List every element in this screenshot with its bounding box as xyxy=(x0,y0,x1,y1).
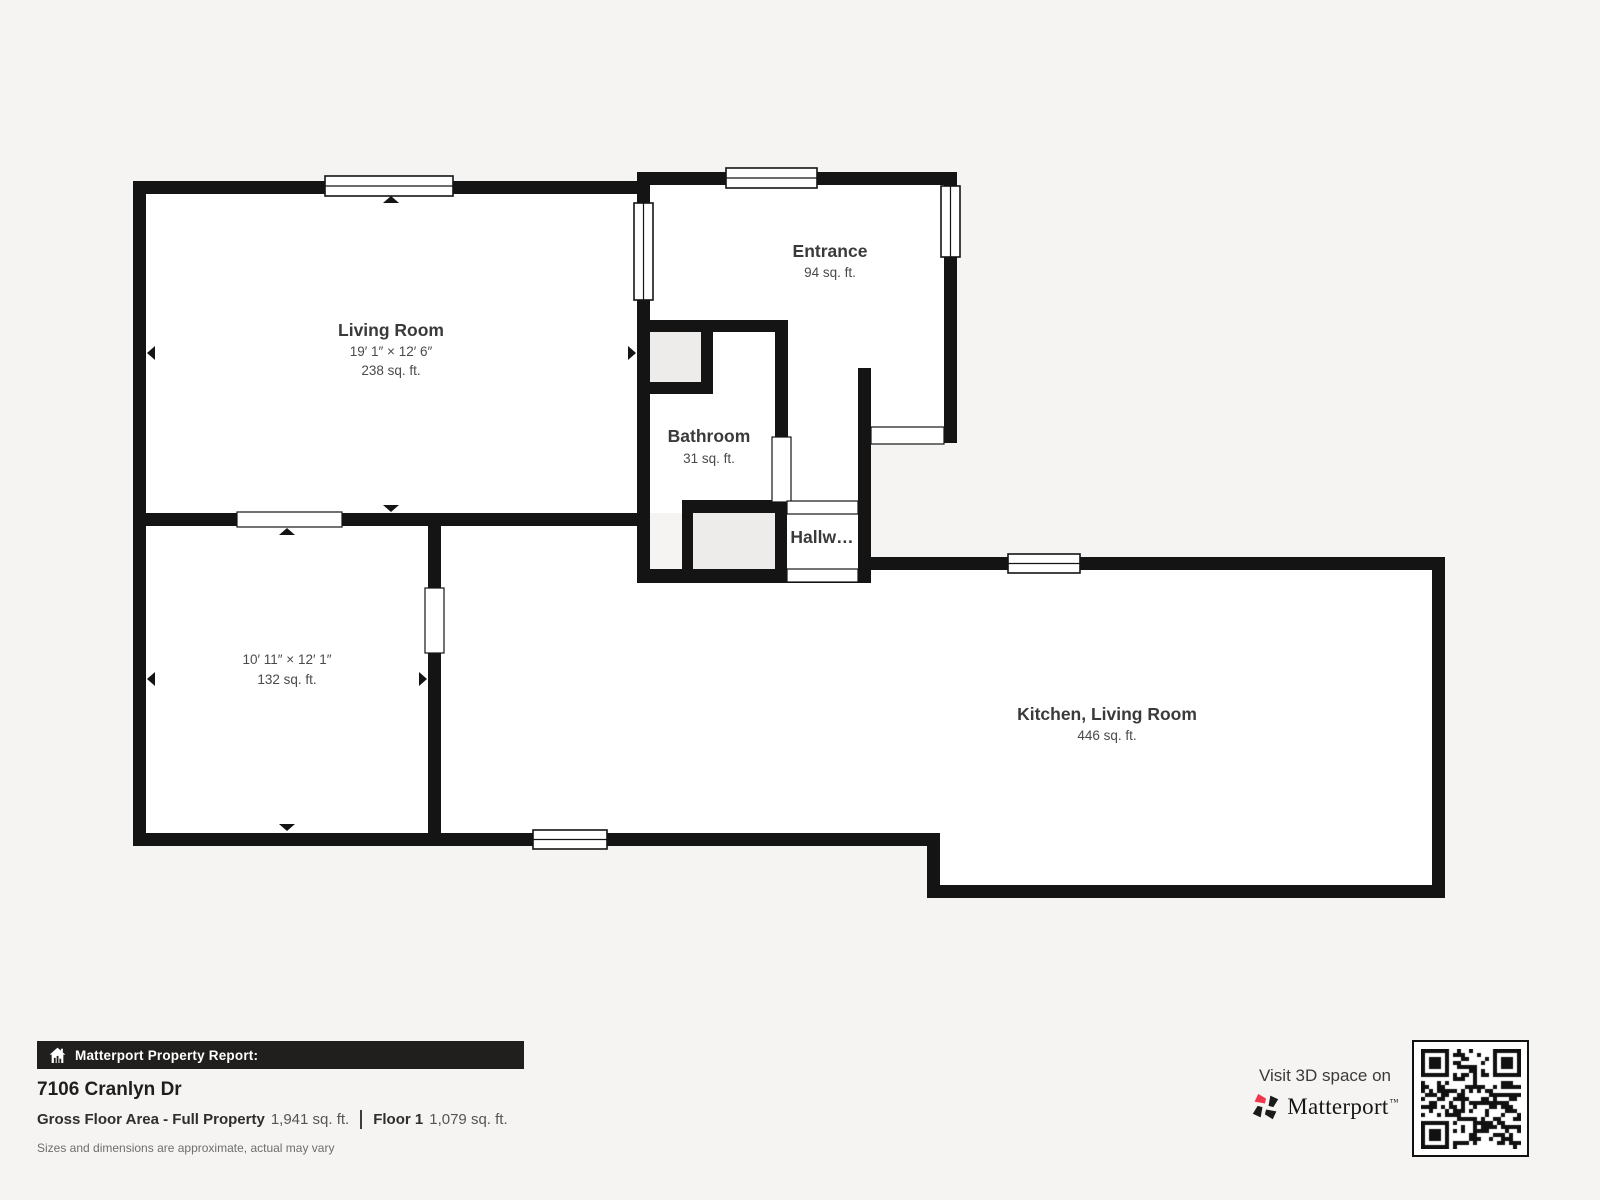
room-name: Entrance xyxy=(793,241,868,261)
room-dimensions: 19′ 1″ × 12′ 6″ xyxy=(350,344,433,359)
wall xyxy=(1432,557,1445,898)
wall xyxy=(927,833,940,898)
wall xyxy=(428,513,441,846)
report-bar-label: Matterport Property Report: xyxy=(75,1048,258,1063)
matterport-pinwheel-icon xyxy=(1251,1092,1280,1121)
room-floors xyxy=(146,185,1432,885)
closet-floor xyxy=(693,513,775,569)
floor-plan: Living Room 19′ 1″ × 12′ 6″ 238 sq. ft. … xyxy=(0,0,1600,1200)
matterport-logo: Matterport™ xyxy=(1232,1092,1418,1121)
wall xyxy=(701,332,713,394)
property-report-page: Living Room 19′ 1″ × 12′ 6″ 238 sq. ft. … xyxy=(0,0,1600,1200)
room-area: 238 sq. ft. xyxy=(361,363,420,378)
door-opening xyxy=(425,588,444,653)
window xyxy=(533,830,607,849)
wall xyxy=(682,500,787,513)
door-opening xyxy=(772,437,791,502)
wall xyxy=(133,181,146,526)
floor-value: 1,079 sq. ft. xyxy=(429,1111,507,1128)
room-area: 446 sq. ft. xyxy=(1077,728,1136,743)
gross-floor-area-label: Gross Floor Area - Full Property xyxy=(37,1111,265,1128)
house-icon xyxy=(49,1047,66,1064)
room-dimensions: 10′ 11″ × 12′ 1″ xyxy=(242,652,331,667)
matterport-wordmark: Matterport™ xyxy=(1287,1094,1398,1120)
room-area: 94 sq. ft. xyxy=(804,265,856,280)
stats-divider xyxy=(360,1110,362,1129)
qr-code xyxy=(1412,1040,1529,1157)
room-name: Living Room xyxy=(338,320,444,340)
closet-floor xyxy=(650,332,701,382)
window xyxy=(941,186,960,257)
door-opening xyxy=(787,501,858,514)
wall xyxy=(133,513,146,846)
property-address: 7106 Cranlyn Dr xyxy=(37,1079,182,1101)
room-name: Bathroom xyxy=(668,426,751,446)
door-opening xyxy=(787,569,858,582)
qr-code-pattern xyxy=(1421,1049,1521,1149)
entrance-corridor-floor xyxy=(787,443,858,501)
visit-3d-text: Visit 3D space on xyxy=(1232,1066,1418,1086)
wall xyxy=(858,557,1445,570)
wall xyxy=(637,320,788,332)
door-opening xyxy=(871,427,944,444)
room-area: 31 sq. ft. xyxy=(683,451,735,466)
wall xyxy=(133,513,650,526)
window xyxy=(726,168,817,188)
window xyxy=(1008,554,1080,573)
floor-area-stats: Gross Floor Area - Full Property 1,941 s… xyxy=(37,1110,508,1129)
gross-floor-area-value: 1,941 sq. ft. xyxy=(271,1111,349,1128)
window xyxy=(634,203,653,300)
room-area: 132 sq. ft. xyxy=(257,672,316,687)
window xyxy=(325,176,453,196)
trademark-mark: ™ xyxy=(1390,1097,1399,1107)
wall xyxy=(858,368,871,582)
room-name: Kitchen, Living Room xyxy=(1017,704,1197,724)
report-header-bar: Matterport Property Report: xyxy=(37,1041,524,1069)
disclaimer-text: Sizes and dimensions are approximate, ac… xyxy=(37,1141,334,1155)
floor-label: Floor 1 xyxy=(373,1111,423,1128)
wall xyxy=(927,885,1445,898)
door-opening xyxy=(237,512,342,527)
room-name: Hallw… xyxy=(790,527,853,547)
